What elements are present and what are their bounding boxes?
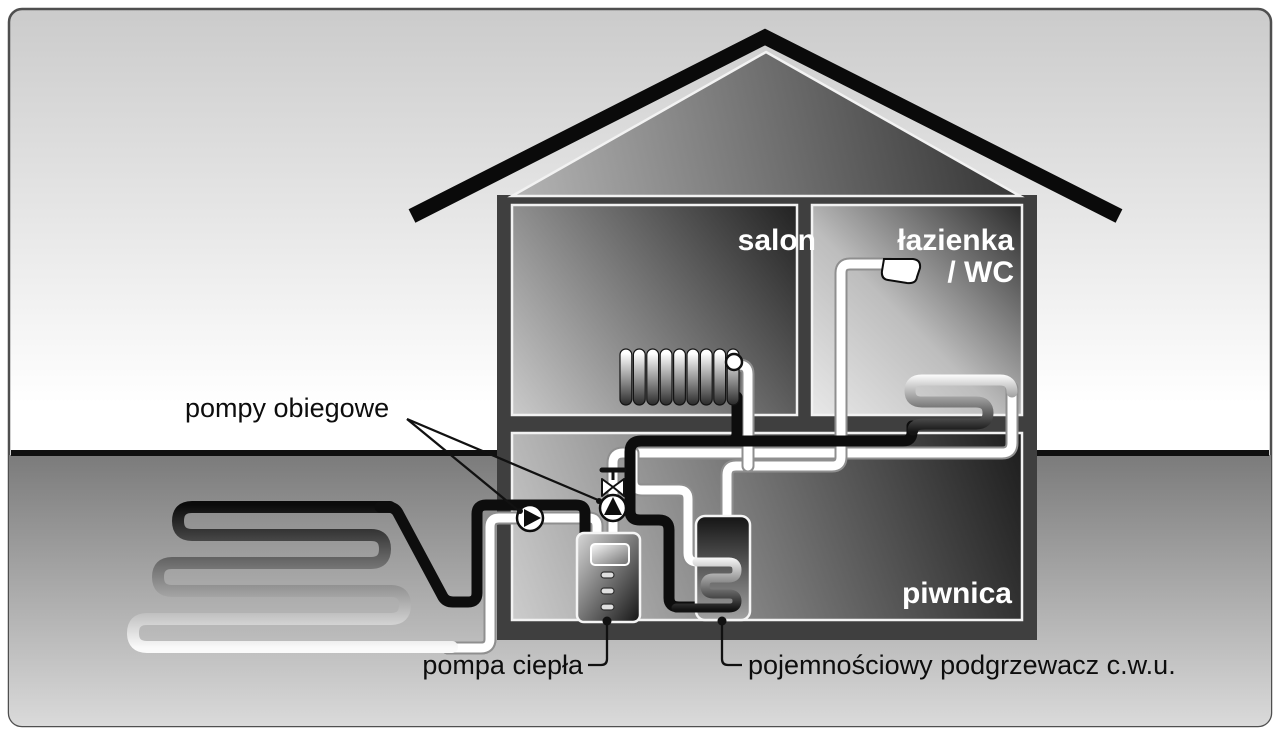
room-label-basement: piwnica — [902, 577, 1012, 610]
radiator-valve-icon — [726, 354, 742, 370]
heat-pump-display — [591, 544, 629, 565]
room-label-salon: salon — [738, 224, 816, 257]
heat-pump-diagram: salon łazienka / WC piwnica pompy obiego… — [0, 0, 1280, 736]
label-heat-pump: pompa ciepła — [422, 650, 584, 680]
room-label-bathroom: łazienka — [897, 224, 1014, 257]
circulation-pump-2-icon — [600, 495, 626, 521]
room-label-bathroom-wc: / WC — [947, 256, 1014, 289]
diagram-canvas: salon łazienka / WC piwnica pompy obiego… — [0, 0, 1280, 736]
heat-pump-unit — [577, 533, 640, 622]
label-circulation-pumps: pompy obiegowe — [185, 393, 389, 423]
shower-icon — [882, 259, 920, 283]
radiator — [620, 349, 742, 405]
label-dhw-tank: pojemnościowy podgrzewacz c.w.u. — [748, 650, 1176, 680]
